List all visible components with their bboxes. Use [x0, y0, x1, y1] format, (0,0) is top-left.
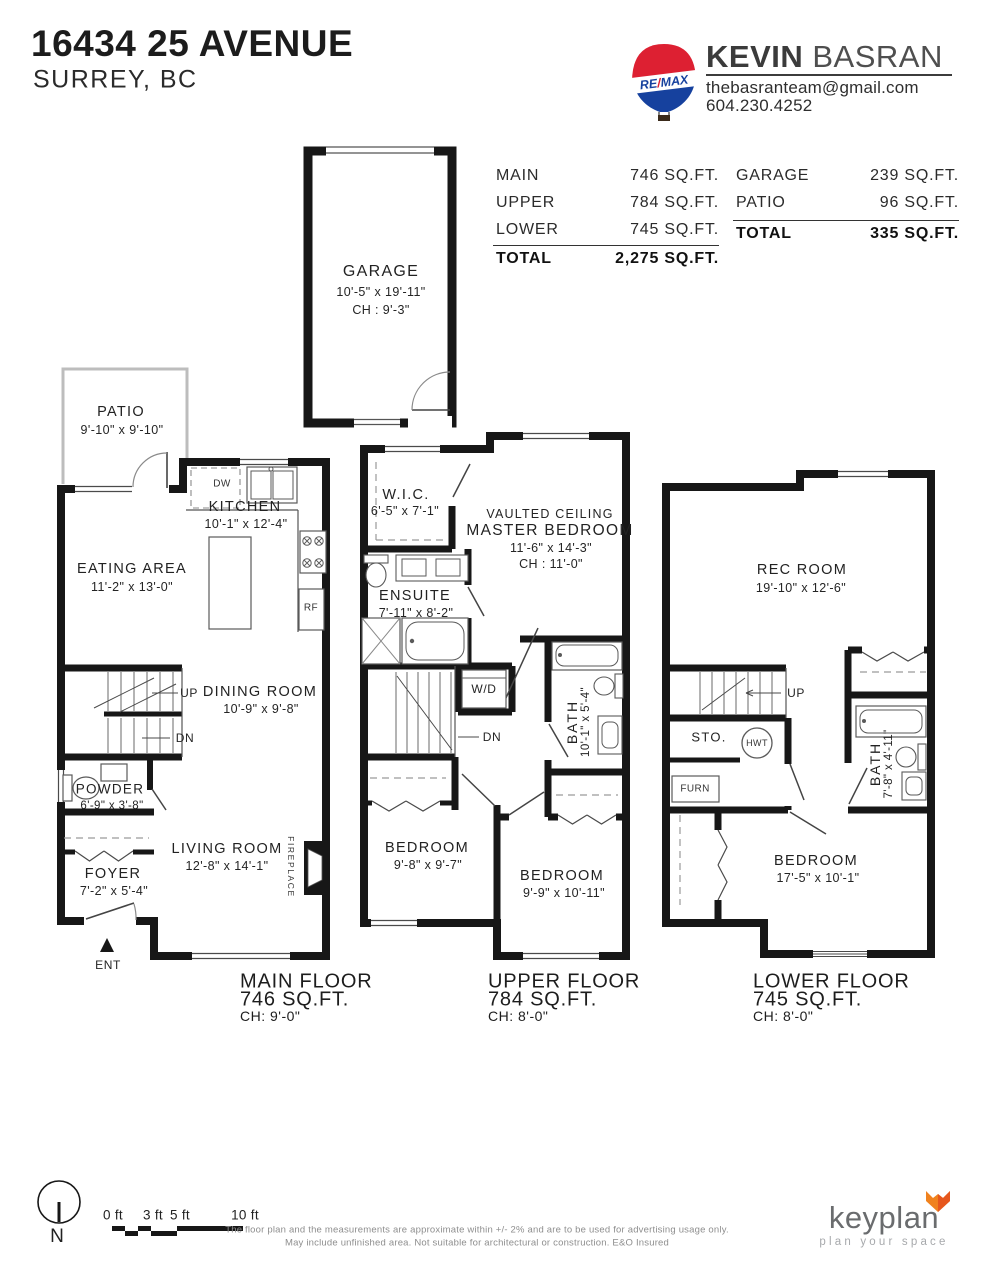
scale-bar	[112, 1226, 243, 1236]
fireplace-label: FIREPLACE	[286, 836, 296, 898]
entry-label: ENT	[95, 958, 121, 972]
room-label-bath-lower: BATH 7'-8" x 4'-11"	[867, 729, 895, 798]
remax-balloon-icon: RE/MAX	[627, 44, 700, 121]
room-dims-kitchen: 10'-1" x 12'-4"	[205, 517, 288, 531]
disclaimer-line-2: May include unfinished area. Not suitabl…	[285, 1238, 669, 1249]
hot-water-tank-label: HWT	[746, 738, 768, 748]
stairs-down-label: DN	[483, 730, 502, 744]
area-row-label: LOWER	[496, 221, 559, 239]
area-total-value: 2,275 SQ.FT.	[615, 250, 719, 268]
compass-north-label: N	[50, 1226, 64, 1248]
area-row-value: 746 SQ.FT.	[630, 167, 719, 185]
stairs-up-label: UP	[787, 686, 805, 700]
room-label-bedroom-right: BEDROOM	[520, 868, 604, 884]
room-ch-master-bedroom: CH : 11'-0"	[519, 557, 583, 571]
compass-icon	[38, 1181, 80, 1223]
bath-name: BATH	[867, 729, 883, 798]
keyplan-logo-text: keyplan	[829, 1200, 939, 1236]
room-dims-rec-room: 19'-10" x 12'-6"	[756, 581, 846, 595]
room-label-eating-area: EATING AREA	[77, 561, 187, 577]
room-dims-wic: 6'-5" x 7'-1"	[371, 504, 439, 518]
room-dims-bedroom-left: 9'-8" x 9'-7"	[394, 858, 462, 872]
room-note-master: VAULTED CEILING	[486, 507, 613, 521]
room-ch-garage: CH : 9'-3"	[352, 303, 409, 317]
room-label-garage: GARAGE	[343, 263, 419, 281]
area-row-value: 784 SQ.FT.	[630, 194, 719, 212]
entry-arrow-icon	[100, 938, 114, 952]
scale-tick: 3 ft	[143, 1208, 163, 1223]
scale-tick: 10 ft	[231, 1208, 259, 1223]
room-label-powder: POWDER	[76, 782, 145, 797]
area-row-label: GARAGE	[736, 167, 809, 185]
area-row-value: 96 SQ.FT.	[880, 194, 959, 212]
area-total-value: 335 SQ.FT.	[870, 225, 959, 243]
room-dims-living-room: 12'-8" x 14'-1"	[186, 859, 269, 873]
area-total-label: TOTAL	[496, 250, 552, 268]
room-dims-eating-area: 11'-2" x 13'-0"	[91, 580, 173, 594]
agent-email: thebasranteam@gmail.com	[706, 78, 919, 98]
stairs-up-label: UP	[180, 686, 198, 700]
area-table-divider	[493, 245, 719, 246]
area-total-label: TOTAL	[736, 225, 792, 243]
room-label-bedroom-left: BEDROOM	[385, 840, 469, 856]
room-label-dining-room: DINING ROOM	[203, 684, 317, 700]
stairs-down-label: DN	[176, 731, 195, 745]
agent-divider	[706, 74, 952, 76]
area-row-value: 239 SQ.FT.	[870, 167, 959, 185]
room-dims-patio: 9'-10" x 9'-10"	[81, 423, 164, 437]
floorplan-graphics: RE/MAX	[0, 0, 988, 1280]
agent-name: KEVIN BASRAN	[706, 39, 943, 75]
room-dims-master-bedroom: 11'-6" x 14'-3"	[510, 541, 592, 555]
area-row-label: PATIO	[736, 194, 786, 212]
bath-dims: 7'-8" x 4'-11"	[883, 729, 895, 798]
agent-first-name: KEVIN	[706, 39, 803, 74]
floorplan-page: RE/MAX 16434 25 AVENUE SURREY, BC KEVIN …	[0, 0, 988, 1280]
room-dims-powder: 6'-9" x 3'-8"	[80, 800, 143, 812]
bath-name: BATH	[564, 687, 580, 757]
agent-last-name: BASRAN	[812, 39, 942, 74]
room-dims-bedroom-lower: 17'-5" x 10'-1"	[777, 871, 860, 885]
page-subtitle: SURREY, BC	[33, 66, 198, 95]
room-dims-garage: 10'-5" x 19'-11"	[336, 285, 425, 299]
room-label-bedroom-lower: BEDROOM	[774, 853, 858, 869]
area-row-label: MAIN	[496, 167, 539, 185]
area-table-divider	[733, 220, 959, 221]
lower-floor-walls	[666, 469, 931, 959]
floor-ch-lower: CH: 8'-0"	[753, 1008, 813, 1024]
room-label-storage: STO.	[691, 730, 726, 745]
room-dims-foyer: 7'-2" x 5'-4"	[80, 884, 148, 898]
furnace-label: FURN	[680, 784, 709, 795]
room-label-wic: W.I.C.	[382, 487, 429, 503]
page-title: 16434 25 AVENUE	[31, 23, 353, 65]
agent-phone: 604.230.4252	[706, 96, 812, 116]
washer-dryer-label: W/D	[471, 682, 496, 696]
room-dims-ensuite: 7'-11" x 8'-2"	[379, 606, 454, 620]
floor-ch-upper: CH: 8'-0"	[488, 1008, 548, 1024]
room-label-ensuite: ENSUITE	[379, 588, 451, 604]
floor-ch-main: CH: 9'-0"	[240, 1008, 300, 1024]
area-row-value: 745 SQ.FT.	[630, 221, 719, 239]
scale-tick: 0 ft	[103, 1208, 123, 1223]
dishwasher-label: DW	[213, 479, 230, 490]
fridge-label: RF	[304, 603, 318, 614]
room-dims-dining-room: 10'-9" x 9'-8"	[223, 702, 299, 716]
room-label-kitchen: KITCHEN	[209, 499, 282, 515]
scale-tick: 5 ft	[170, 1208, 190, 1223]
room-label-master-bedroom: MASTER BEDROOM	[466, 522, 633, 540]
room-label-foyer: FOYER	[85, 866, 141, 882]
bath-dims: 10'-1" x 5'-4"	[580, 687, 592, 757]
room-label-living-room: LIVING ROOM	[172, 841, 283, 857]
area-row-label: UPPER	[496, 194, 555, 212]
room-dims-bedroom-right: 9'-9" x 10'-11"	[523, 886, 605, 900]
room-label-rec-room: REC ROOM	[757, 562, 847, 578]
room-label-patio: PATIO	[97, 404, 145, 420]
disclaimer-line-1: The floor plan and the measurements are …	[225, 1225, 729, 1236]
keyplan-tagline: plan your space	[819, 1236, 948, 1248]
room-label-bath-upper: BATH 10'-1" x 5'-4"	[564, 687, 592, 757]
